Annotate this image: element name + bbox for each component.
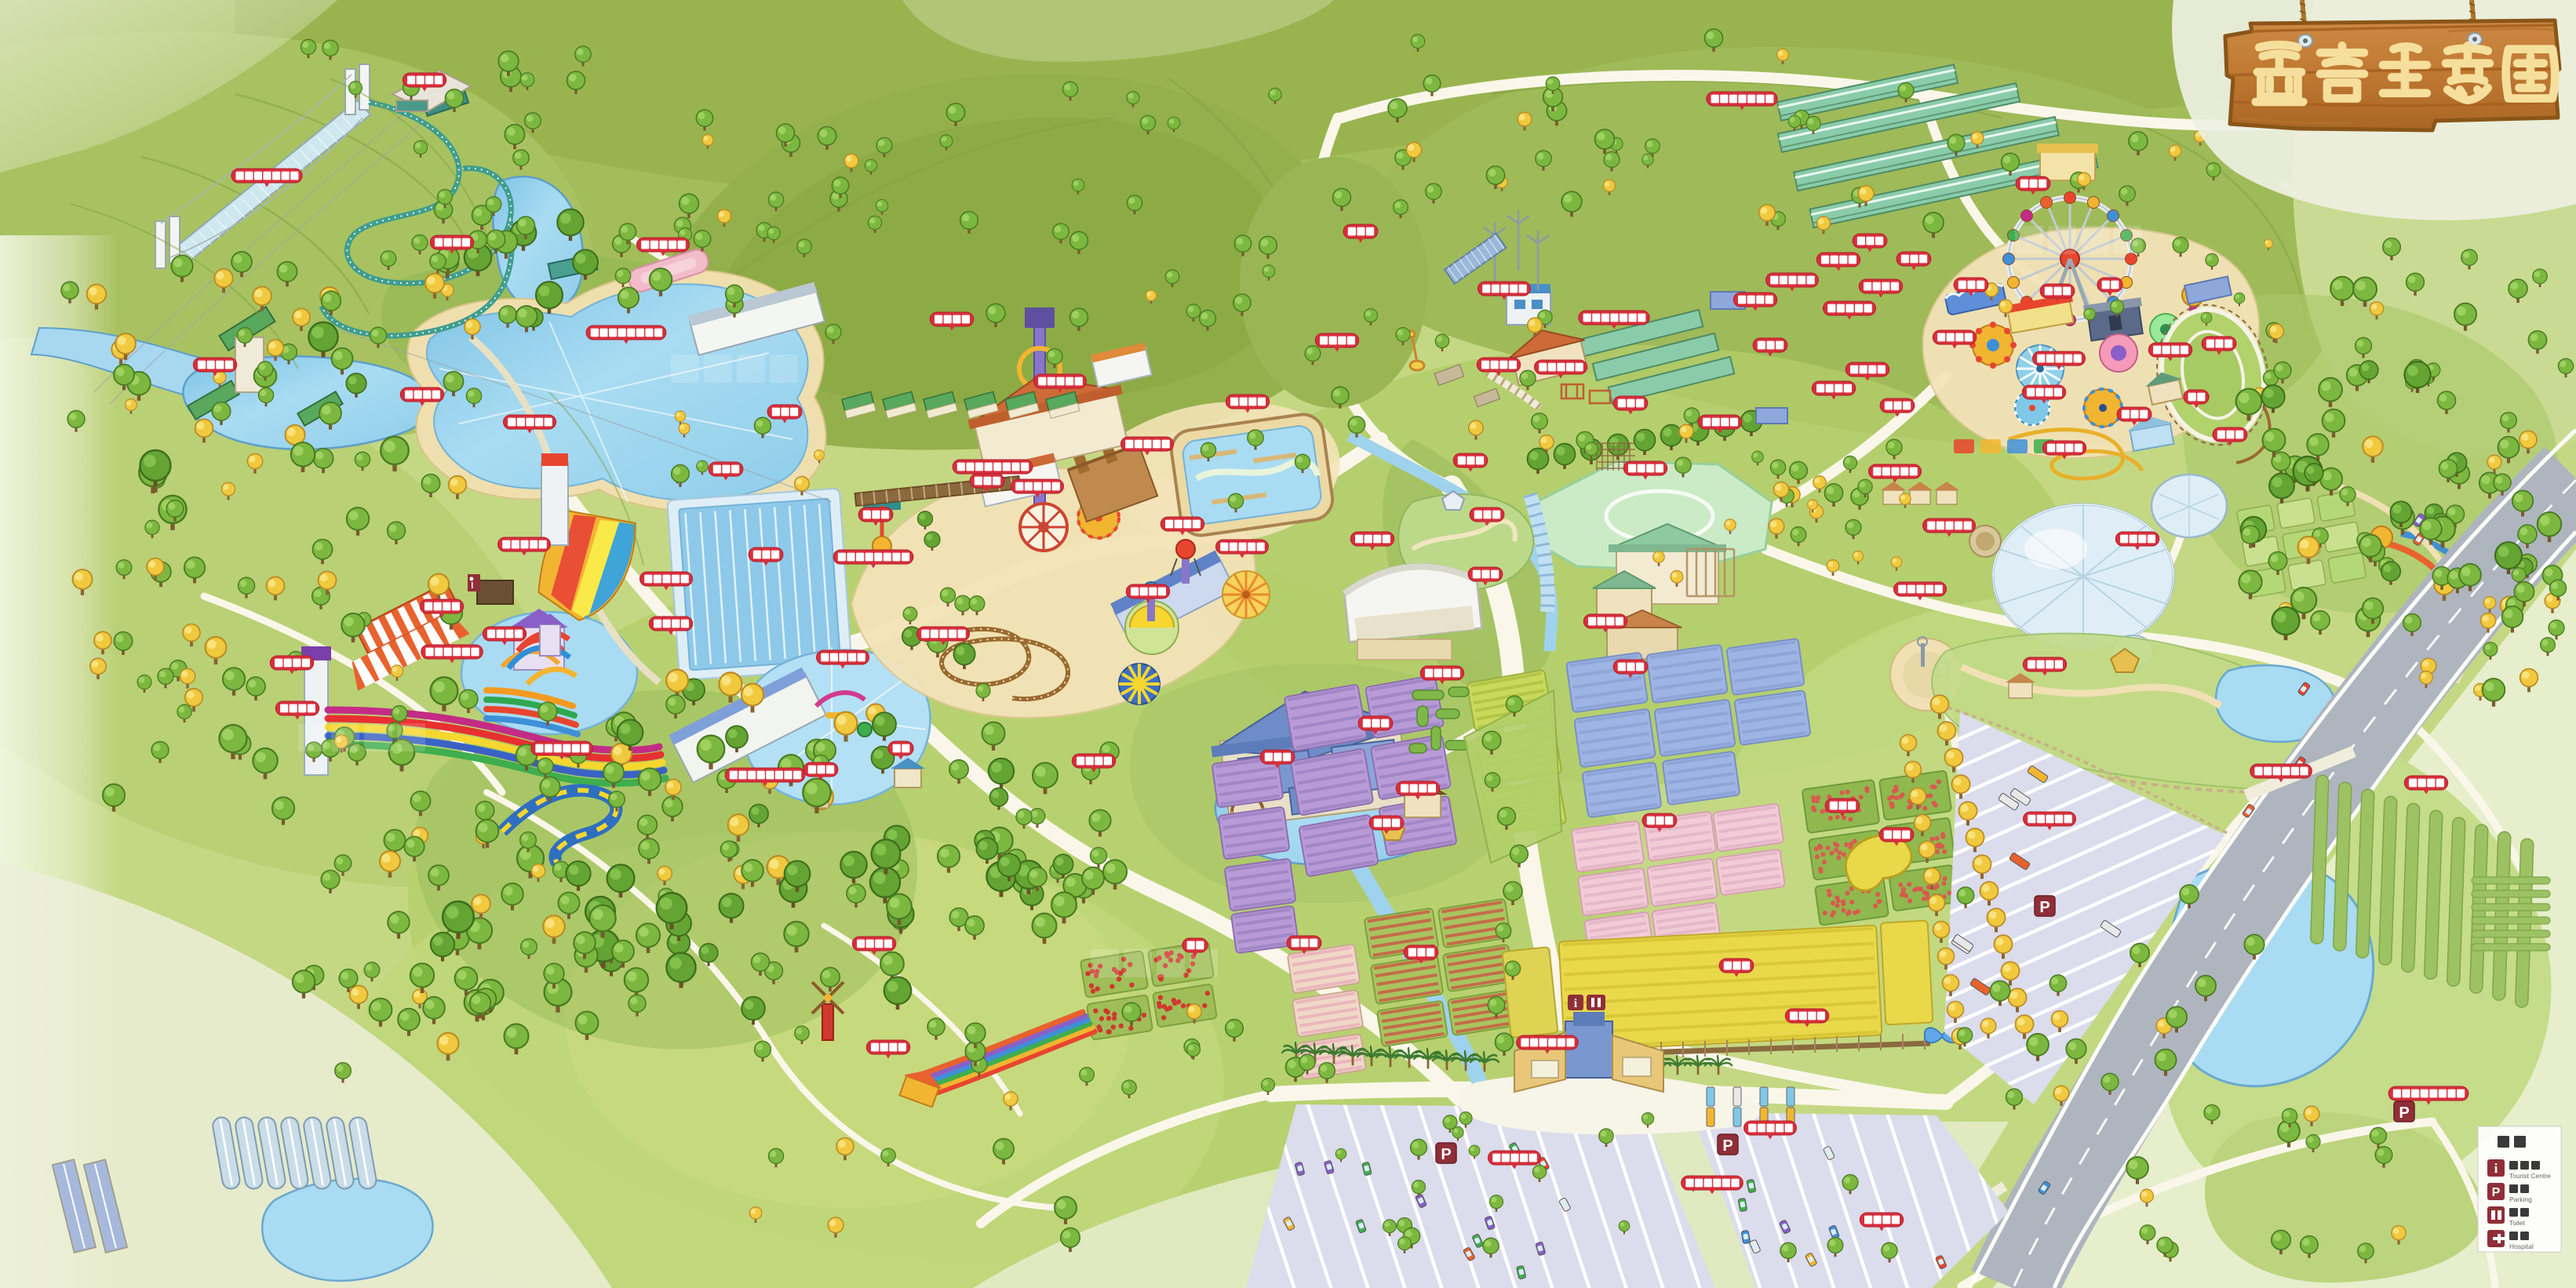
- svg-text:P: P: [1722, 1137, 1733, 1155]
- svg-text:P: P: [2399, 1104, 2409, 1122]
- svg-text:Hospital: Hospital: [2509, 1243, 2534, 1250]
- svg-text:Parking: Parking: [2509, 1195, 2532, 1203]
- svg-text:P: P: [2039, 899, 2050, 916]
- svg-text:i: i: [2494, 1161, 2498, 1176]
- svg-text:P: P: [1441, 1146, 1451, 1163]
- svg-text:Toilet: Toilet: [2509, 1219, 2525, 1227]
- svg-text:Tourist Centre: Tourist Centre: [2509, 1172, 2551, 1180]
- svg-text:i: i: [1574, 997, 1578, 1010]
- svg-text:P: P: [2492, 1186, 2501, 1199]
